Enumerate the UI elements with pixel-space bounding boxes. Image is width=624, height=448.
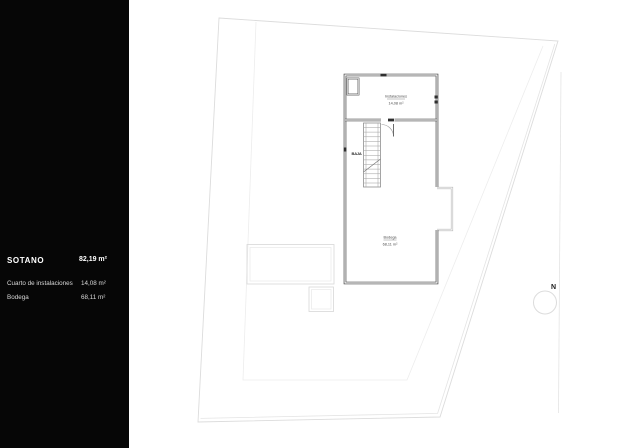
patio-square-inner (312, 290, 332, 310)
closet-walls (348, 79, 359, 95)
staircase (364, 123, 381, 187)
parcel-boundary (198, 18, 558, 422)
terrace-outline-inner (250, 248, 331, 282)
door-swing (382, 124, 394, 137)
compass-circle (534, 291, 557, 314)
room-label-bodega: Bodega 68,11 m² (383, 236, 398, 247)
parcel-boundary-inner-edge (201, 44, 555, 418)
window-tag-icon (381, 74, 387, 77)
svg-text:14,08 m²: 14,08 m² (389, 102, 405, 106)
patio-square-outline (309, 287, 334, 312)
svg-text:Bodega: Bodega (383, 236, 397, 240)
room-label-instalaciones: Instalaciones 14,08 m² (385, 95, 407, 106)
floor-plan-page: SOTANO 82,19 m² Cuarto de instalaciones … (0, 0, 624, 448)
lightwell-walls (437, 188, 452, 230)
door-tag-icon (388, 119, 394, 122)
north-label: N (551, 284, 556, 291)
stair-direction-label: BAJA (352, 151, 362, 156)
svg-text:Instalaciones: Instalaciones (385, 95, 407, 99)
wall-tag-icon (344, 148, 347, 152)
floor-plan-canvas: BAJA Instalaciones 14,08 m² Bodega 68,11… (0, 0, 624, 448)
vent-tag-icon (435, 101, 438, 104)
terrace-outline (247, 245, 334, 285)
north-compass: N (534, 284, 557, 314)
road-edge-line (559, 72, 562, 413)
svg-text:68,11 m²: 68,11 m² (383, 243, 398, 247)
exterior-walls (345, 75, 437, 283)
vent-tag-icon (435, 96, 438, 99)
